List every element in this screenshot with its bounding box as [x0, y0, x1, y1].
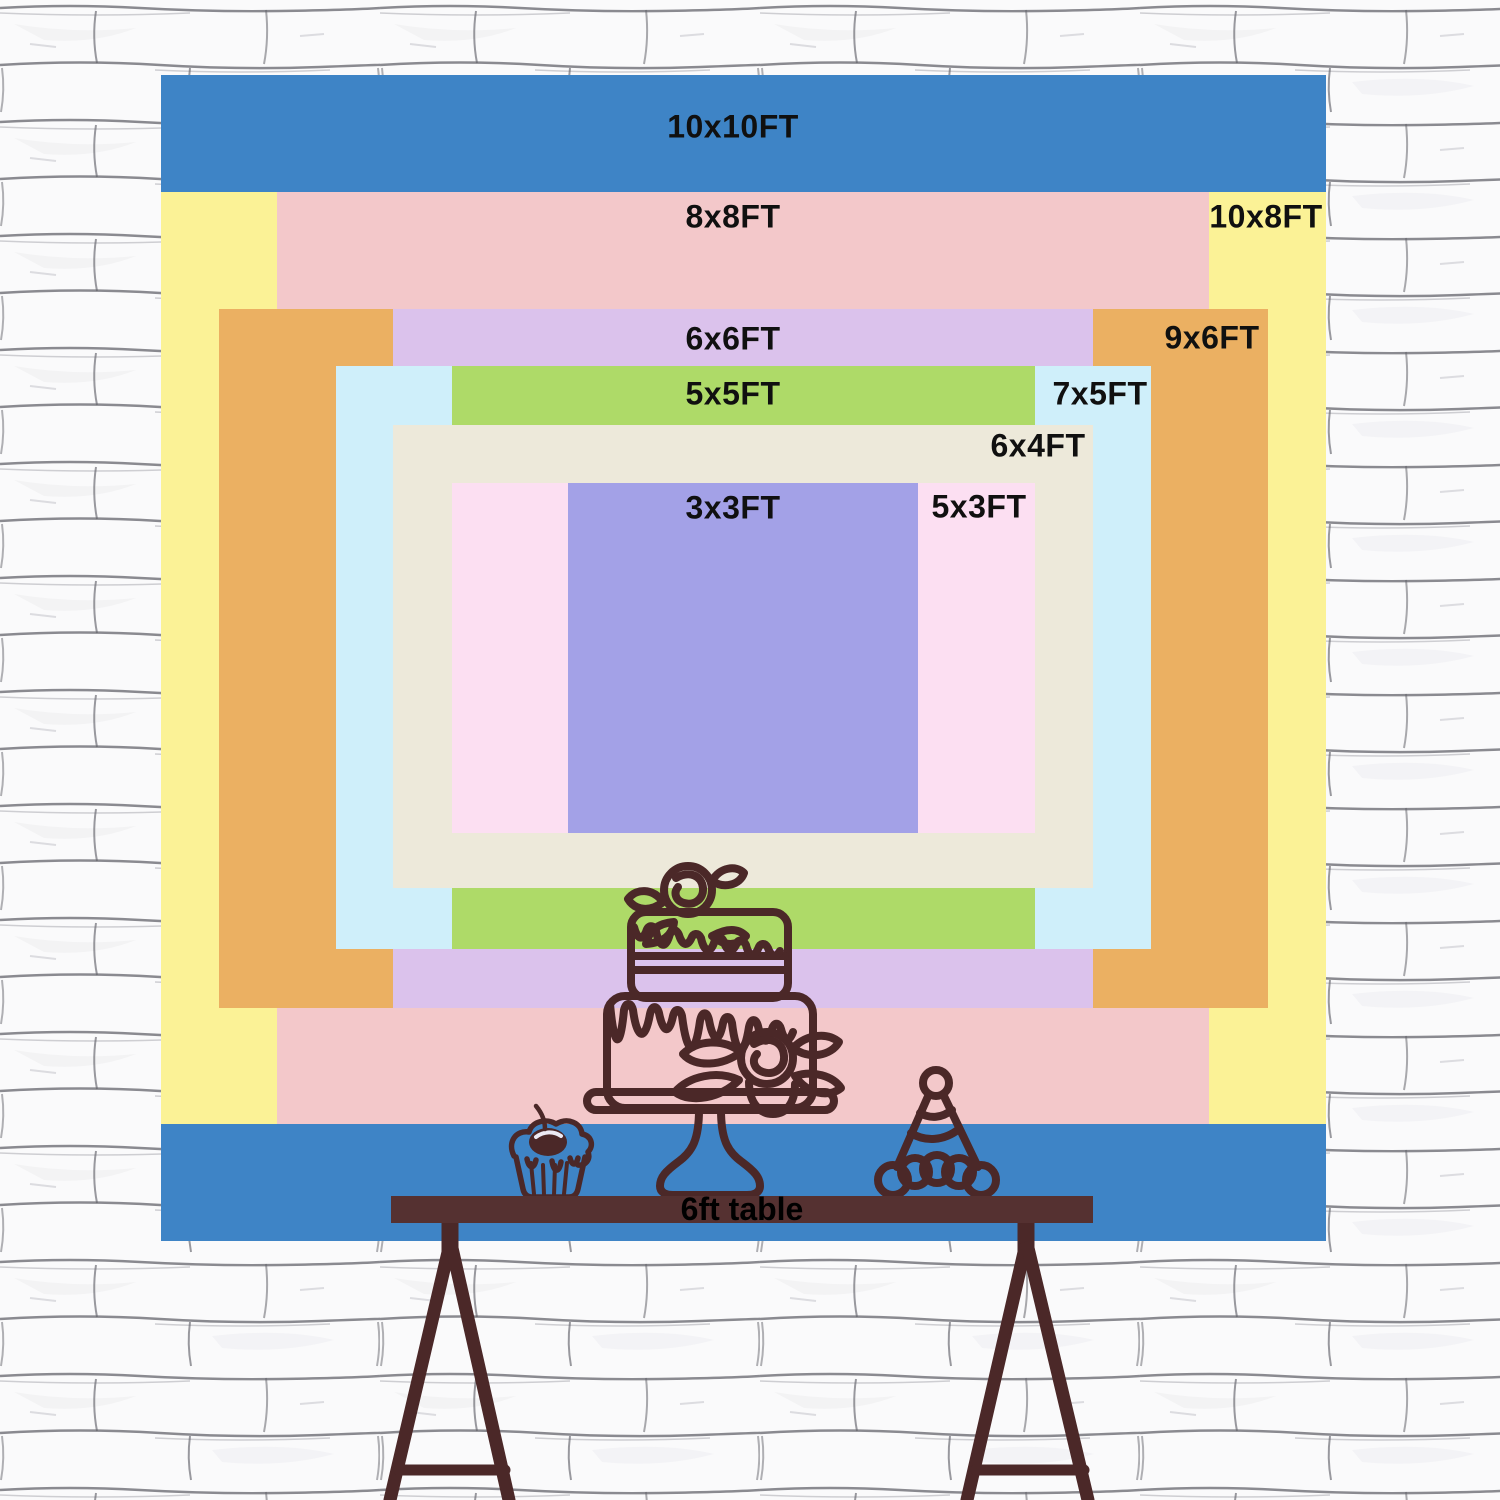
- table-label: 6ft table: [681, 1196, 804, 1223]
- party-hat-icon: [878, 1070, 996, 1195]
- backdrop-size-chart: 10x10FT 8x8FT 10x8FT 6x6FT 9x6FT 5x5FT 7…: [0, 0, 1500, 1500]
- cake-icon: [587, 866, 841, 1195]
- decoration-line-art: [0, 0, 1500, 1500]
- table-legs: [390, 1216, 1088, 1500]
- table-top: 6ft table: [391, 1196, 1093, 1223]
- cupcake-icon: [512, 1106, 592, 1197]
